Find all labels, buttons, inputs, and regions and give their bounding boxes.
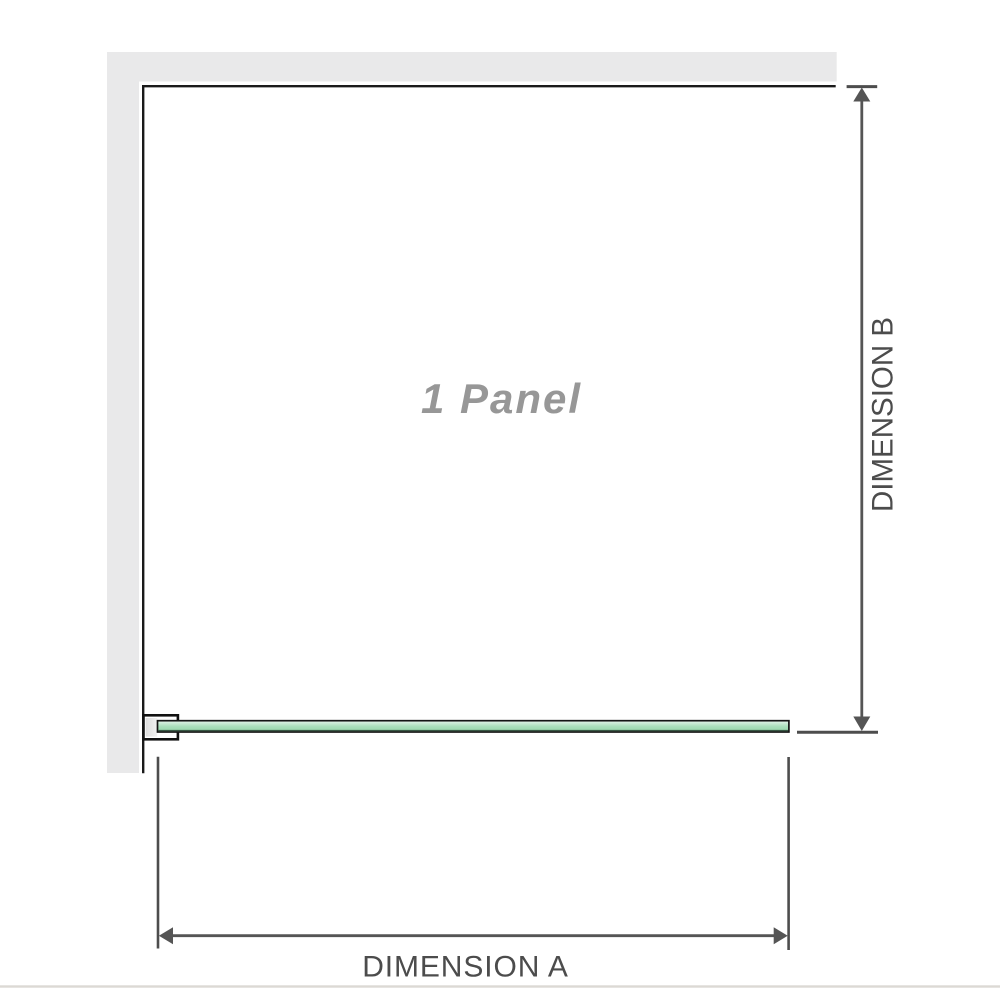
svg-text:DIMENSION B: DIMENSION B bbox=[866, 317, 899, 512]
svg-text:1 Panel: 1 Panel bbox=[421, 375, 582, 422]
svg-text:DIMENSION A: DIMENSION A bbox=[362, 951, 569, 984]
